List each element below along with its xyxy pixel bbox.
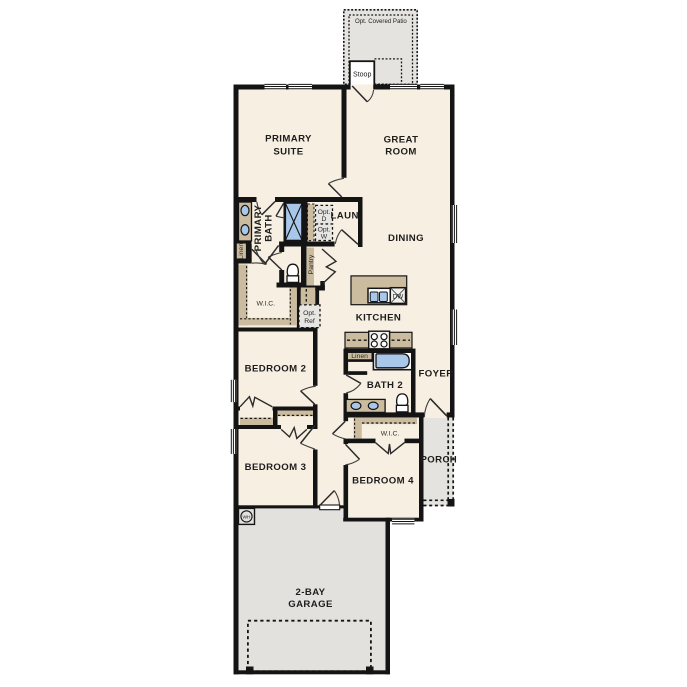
svg-text:D: D bbox=[322, 216, 327, 223]
svg-text:WH: WH bbox=[243, 514, 252, 520]
svg-text:BEDROOM 4: BEDROOM 4 bbox=[352, 476, 414, 487]
svg-text:PORCH: PORCH bbox=[420, 454, 457, 465]
svg-text:BEDROOM 2: BEDROOM 2 bbox=[245, 364, 307, 375]
svg-text:DW: DW bbox=[393, 294, 405, 301]
svg-text:LAUN.: LAUN. bbox=[331, 210, 362, 221]
svg-text:W.I.C.: W.I.C. bbox=[257, 301, 276, 308]
svg-text:BATH: BATH bbox=[264, 214, 275, 242]
svg-text:W: W bbox=[321, 234, 328, 241]
svg-text:W.I.C.: W.I.C. bbox=[381, 431, 400, 438]
svg-text:KITCHEN: KITCHEN bbox=[356, 313, 401, 324]
svg-text:PRIMARY: PRIMARY bbox=[265, 134, 312, 145]
svg-text:GREAT: GREAT bbox=[384, 135, 419, 146]
svg-text:PRIMARY: PRIMARY bbox=[253, 204, 264, 251]
svg-text:Linen: Linen bbox=[238, 243, 245, 260]
svg-text:Opt.: Opt. bbox=[303, 310, 316, 317]
svg-text:2-BAY: 2-BAY bbox=[296, 587, 326, 598]
svg-text:Opt. Covered Patio: Opt. Covered Patio bbox=[355, 18, 407, 25]
svg-text:SUITE: SUITE bbox=[273, 147, 303, 158]
svg-text:Ref: Ref bbox=[304, 318, 315, 325]
svg-text:Pantry: Pantry bbox=[308, 254, 315, 274]
svg-text:GARAGE: GARAGE bbox=[288, 599, 333, 610]
svg-text:ROOM: ROOM bbox=[385, 147, 416, 158]
svg-text:FOYER: FOYER bbox=[418, 368, 453, 379]
svg-text:BEDROOM 3: BEDROOM 3 bbox=[245, 462, 307, 473]
svg-text:BATH 2: BATH 2 bbox=[367, 380, 403, 391]
svg-text:Linen: Linen bbox=[351, 353, 368, 360]
svg-text:Opt.: Opt. bbox=[318, 209, 331, 216]
svg-text:Stoop: Stoop bbox=[353, 71, 371, 78]
svg-text:Opt.: Opt. bbox=[318, 226, 331, 233]
svg-text:DINING: DINING bbox=[388, 233, 424, 244]
